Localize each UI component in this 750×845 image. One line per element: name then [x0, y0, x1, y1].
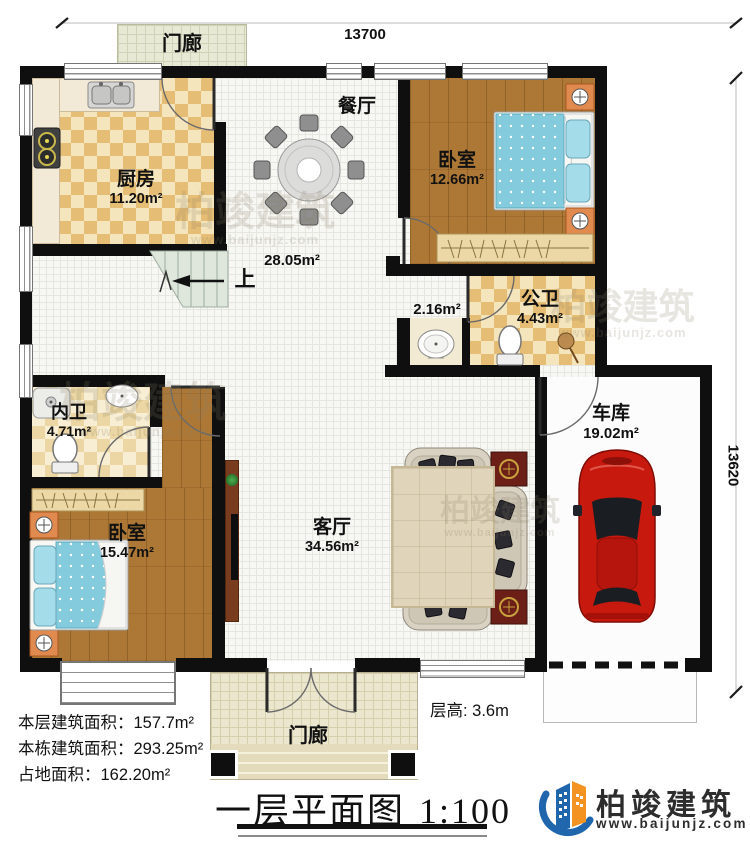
floor-plan-page: 柏竣建筑 www.baijunjz.com 柏竣建筑 www.baijunjz.…	[0, 0, 750, 845]
tv	[231, 514, 238, 580]
stairs	[150, 251, 228, 307]
area-rug	[391, 466, 495, 608]
brand-logo-icon	[536, 776, 594, 840]
stat-footprint-area: 占地面积：162.20m²	[18, 762, 203, 788]
shower-head-icon	[558, 333, 578, 363]
stat-building-area: 本栋建筑面积：293.25m²	[18, 736, 203, 762]
wash-basin	[418, 330, 454, 358]
dining-table	[254, 115, 364, 225]
toilet	[497, 326, 523, 365]
bed-bottom	[30, 540, 128, 630]
dimension-right: 13620	[725, 421, 742, 511]
stat-floor-area: 本层建筑面积：157.7m²	[18, 710, 203, 736]
shower-tray	[33, 388, 70, 418]
floor-height: 层高: 3.6m	[430, 698, 509, 724]
wardrobe	[437, 234, 593, 262]
car	[573, 450, 661, 622]
dimension-top: 13700	[330, 26, 400, 43]
bathroom-sink	[106, 385, 138, 407]
brand-url: www.baijunjz.com	[596, 816, 748, 831]
kitchen-stove	[34, 128, 60, 168]
toilet	[52, 434, 78, 473]
title-underline-thin	[238, 835, 487, 837]
bed-top	[494, 112, 594, 210]
title-underline-thick	[237, 824, 487, 829]
kitchen-sink	[88, 82, 134, 108]
plant-icon	[226, 474, 238, 486]
wardrobe	[32, 489, 144, 511]
area-statistics: 本层建筑面积：157.7m² 本栋建筑面积：293.25m² 占地面积：162.…	[18, 710, 203, 788]
